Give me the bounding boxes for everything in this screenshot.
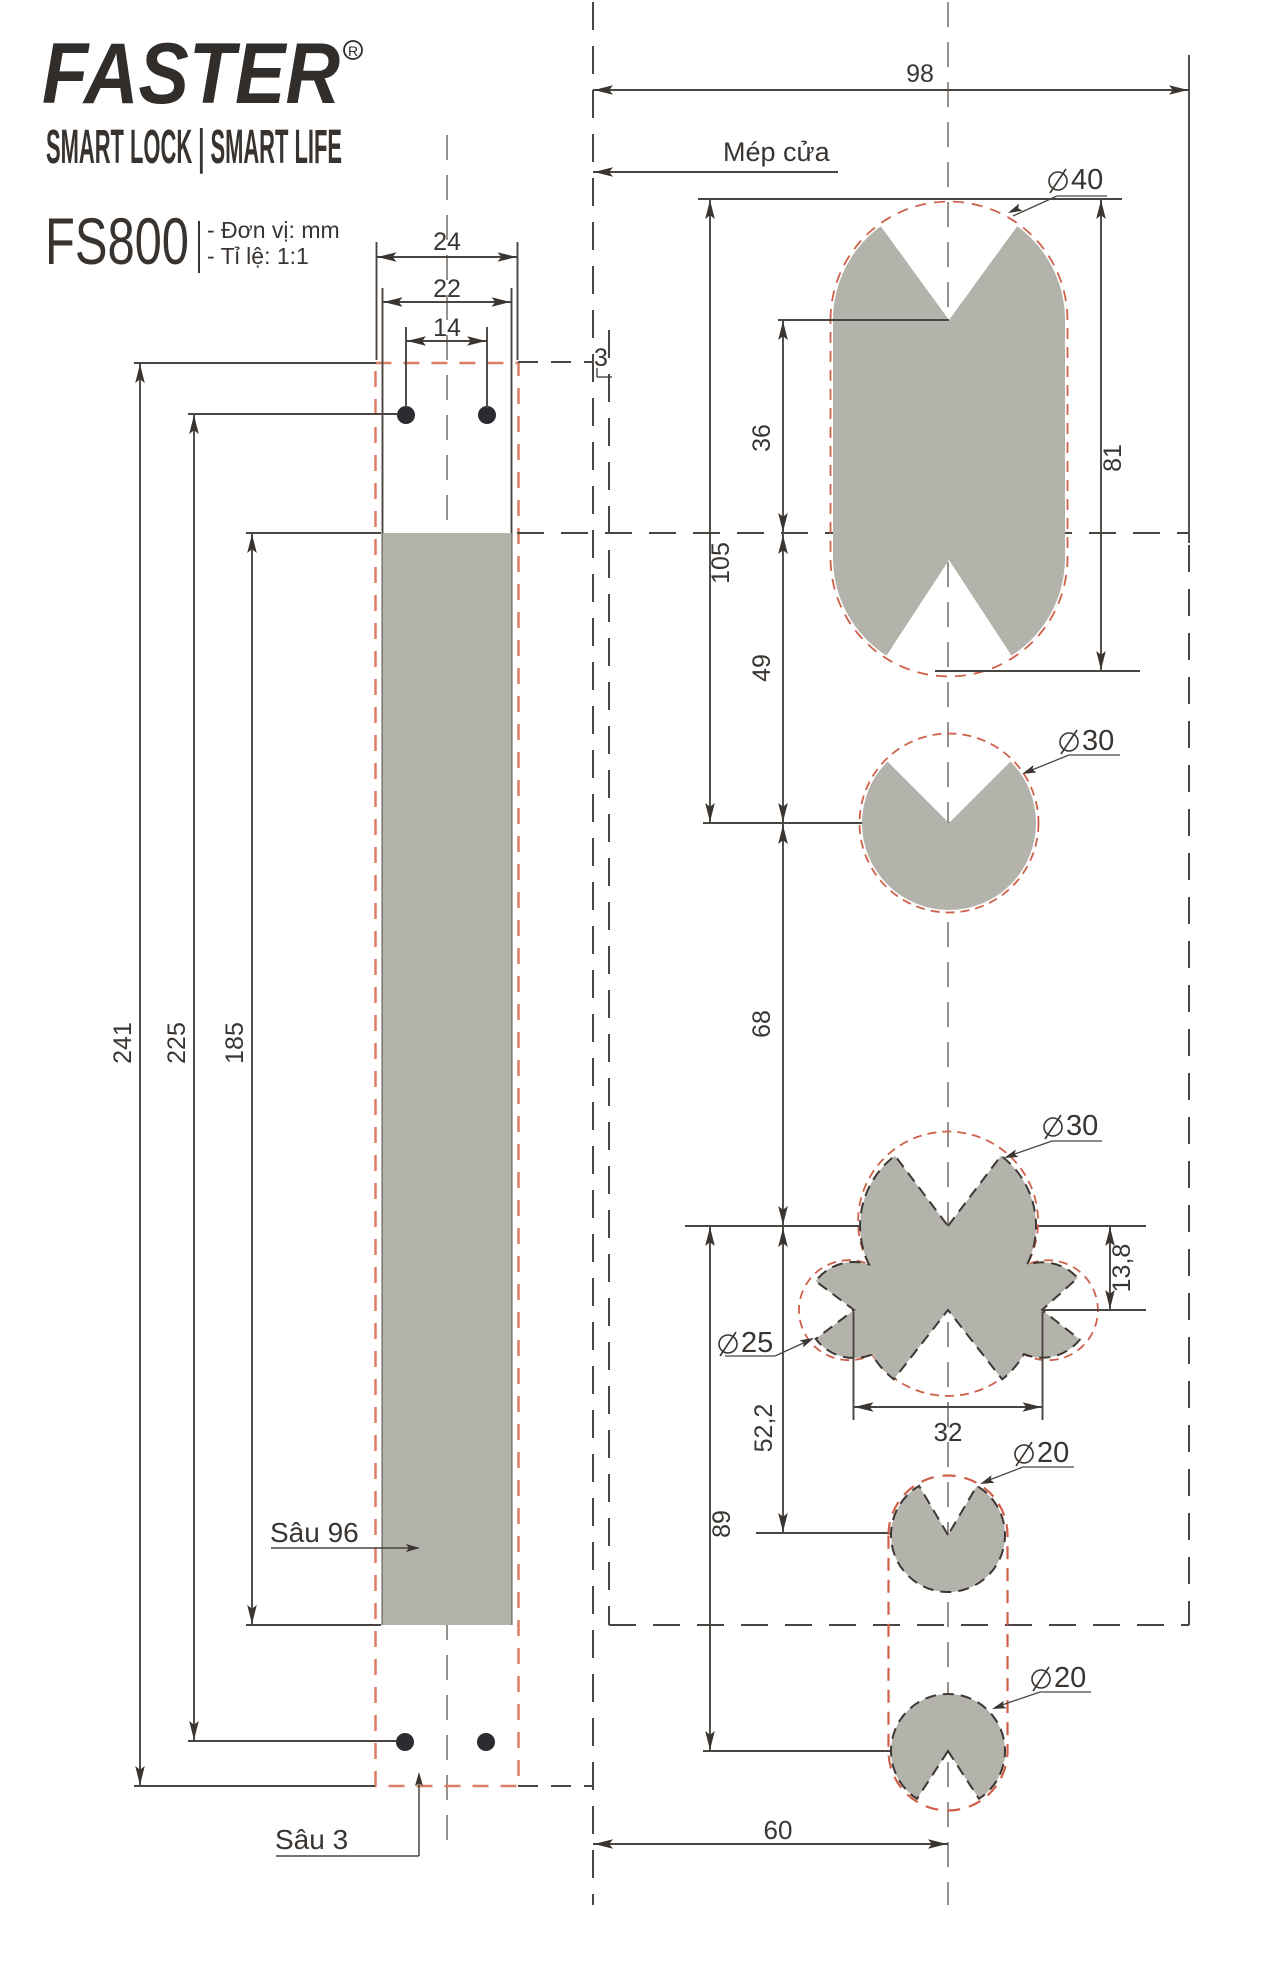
svg-text:241: 241: [109, 1022, 137, 1064]
svg-text:SMART LOCK | SMART LIFE: SMART LOCK | SMART LIFE: [46, 121, 342, 174]
svg-text:R: R: [348, 43, 358, 59]
svg-text:25: 25: [741, 1327, 773, 1359]
svg-text:- Đơn vị: mm: - Đơn vị: mm: [207, 217, 340, 243]
svg-text:89: 89: [708, 1510, 736, 1538]
svg-text:52,2: 52,2: [750, 1404, 778, 1453]
svg-text:- Tỉ lệ: 1:1: - Tỉ lệ: 1:1: [207, 243, 309, 269]
svg-text:30: 30: [1066, 1110, 1098, 1142]
svg-text:68: 68: [748, 1010, 776, 1038]
svg-text:49: 49: [748, 654, 776, 682]
svg-text:22: 22: [433, 275, 461, 303]
svg-text:13,8: 13,8: [1108, 1244, 1136, 1293]
svg-text:20: 20: [1054, 1662, 1086, 1694]
svg-text:185: 185: [221, 1022, 249, 1064]
svg-text:32: 32: [934, 1417, 963, 1447]
svg-text:105: 105: [707, 542, 735, 584]
svg-text:14: 14: [433, 314, 461, 342]
svg-text:3: 3: [594, 344, 608, 372]
svg-text:FS800: FS800: [45, 204, 189, 278]
svg-text:98: 98: [906, 60, 934, 88]
svg-text:81: 81: [1099, 444, 1127, 472]
svg-text:60: 60: [764, 1815, 793, 1845]
svg-text:Mép cửa: Mép cửa: [723, 137, 831, 167]
svg-text:FASTER: FASTER: [42, 26, 340, 122]
svg-text:36: 36: [748, 424, 776, 452]
svg-text:225: 225: [163, 1022, 191, 1064]
svg-text:20: 20: [1037, 1437, 1069, 1469]
svg-text:Sâu 3: Sâu 3: [275, 1824, 348, 1855]
svg-text:24: 24: [433, 228, 461, 256]
svg-text:30: 30: [1082, 725, 1114, 757]
svg-text:40: 40: [1071, 164, 1103, 196]
svg-text:Sâu 96: Sâu 96: [270, 1517, 359, 1548]
